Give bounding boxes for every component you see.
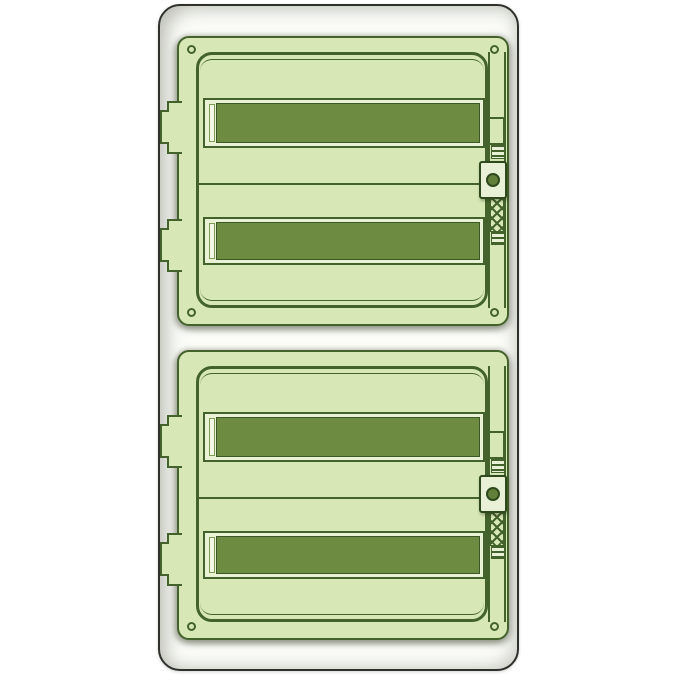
window-glass [216,536,480,574]
module-window-row-1 [203,412,485,462]
latch-vent-icon [491,545,505,559]
module-window-row-2 [203,217,485,265]
enclosure-body [158,4,519,671]
latch-knob [486,173,500,187]
window-glass [216,222,480,260]
window-highlight [209,223,215,259]
latch-vent-icon [491,144,505,159]
latch-knob [486,487,500,501]
corner-screw [490,308,499,317]
latch-block [488,117,505,145]
product-illustration-electrical-enclosure [0,0,680,680]
window-glass [216,103,480,143]
corner-screw [187,622,196,631]
module-window-row-1 [203,98,485,148]
latch-block [488,431,505,459]
hinge-tab-icon [160,101,182,154]
latch-vent-icon [491,458,505,473]
latch-lattice-icon [489,199,505,232]
window-highlight [209,537,215,573]
latch-handle [479,161,507,199]
corner-screw [187,308,196,317]
window-glass [216,417,480,457]
door-section-top [177,36,509,326]
corner-screw [490,622,499,631]
window-highlight [209,418,215,456]
window-highlight [209,104,215,142]
hinge-tab-icon [160,415,182,468]
row-divider [198,497,488,499]
corner-screw [187,45,196,54]
door-section-bottom [177,350,509,640]
latch-lattice-icon [489,513,505,546]
module-window-row-2 [203,531,485,579]
door-frame [196,366,488,622]
hinge-tab-icon [160,533,182,586]
row-divider [198,183,488,185]
corner-screw [490,45,499,54]
hinge-tab-icon [160,219,182,272]
latch-vent-icon [491,231,505,245]
door-frame [196,52,488,308]
latch-handle [479,475,507,513]
